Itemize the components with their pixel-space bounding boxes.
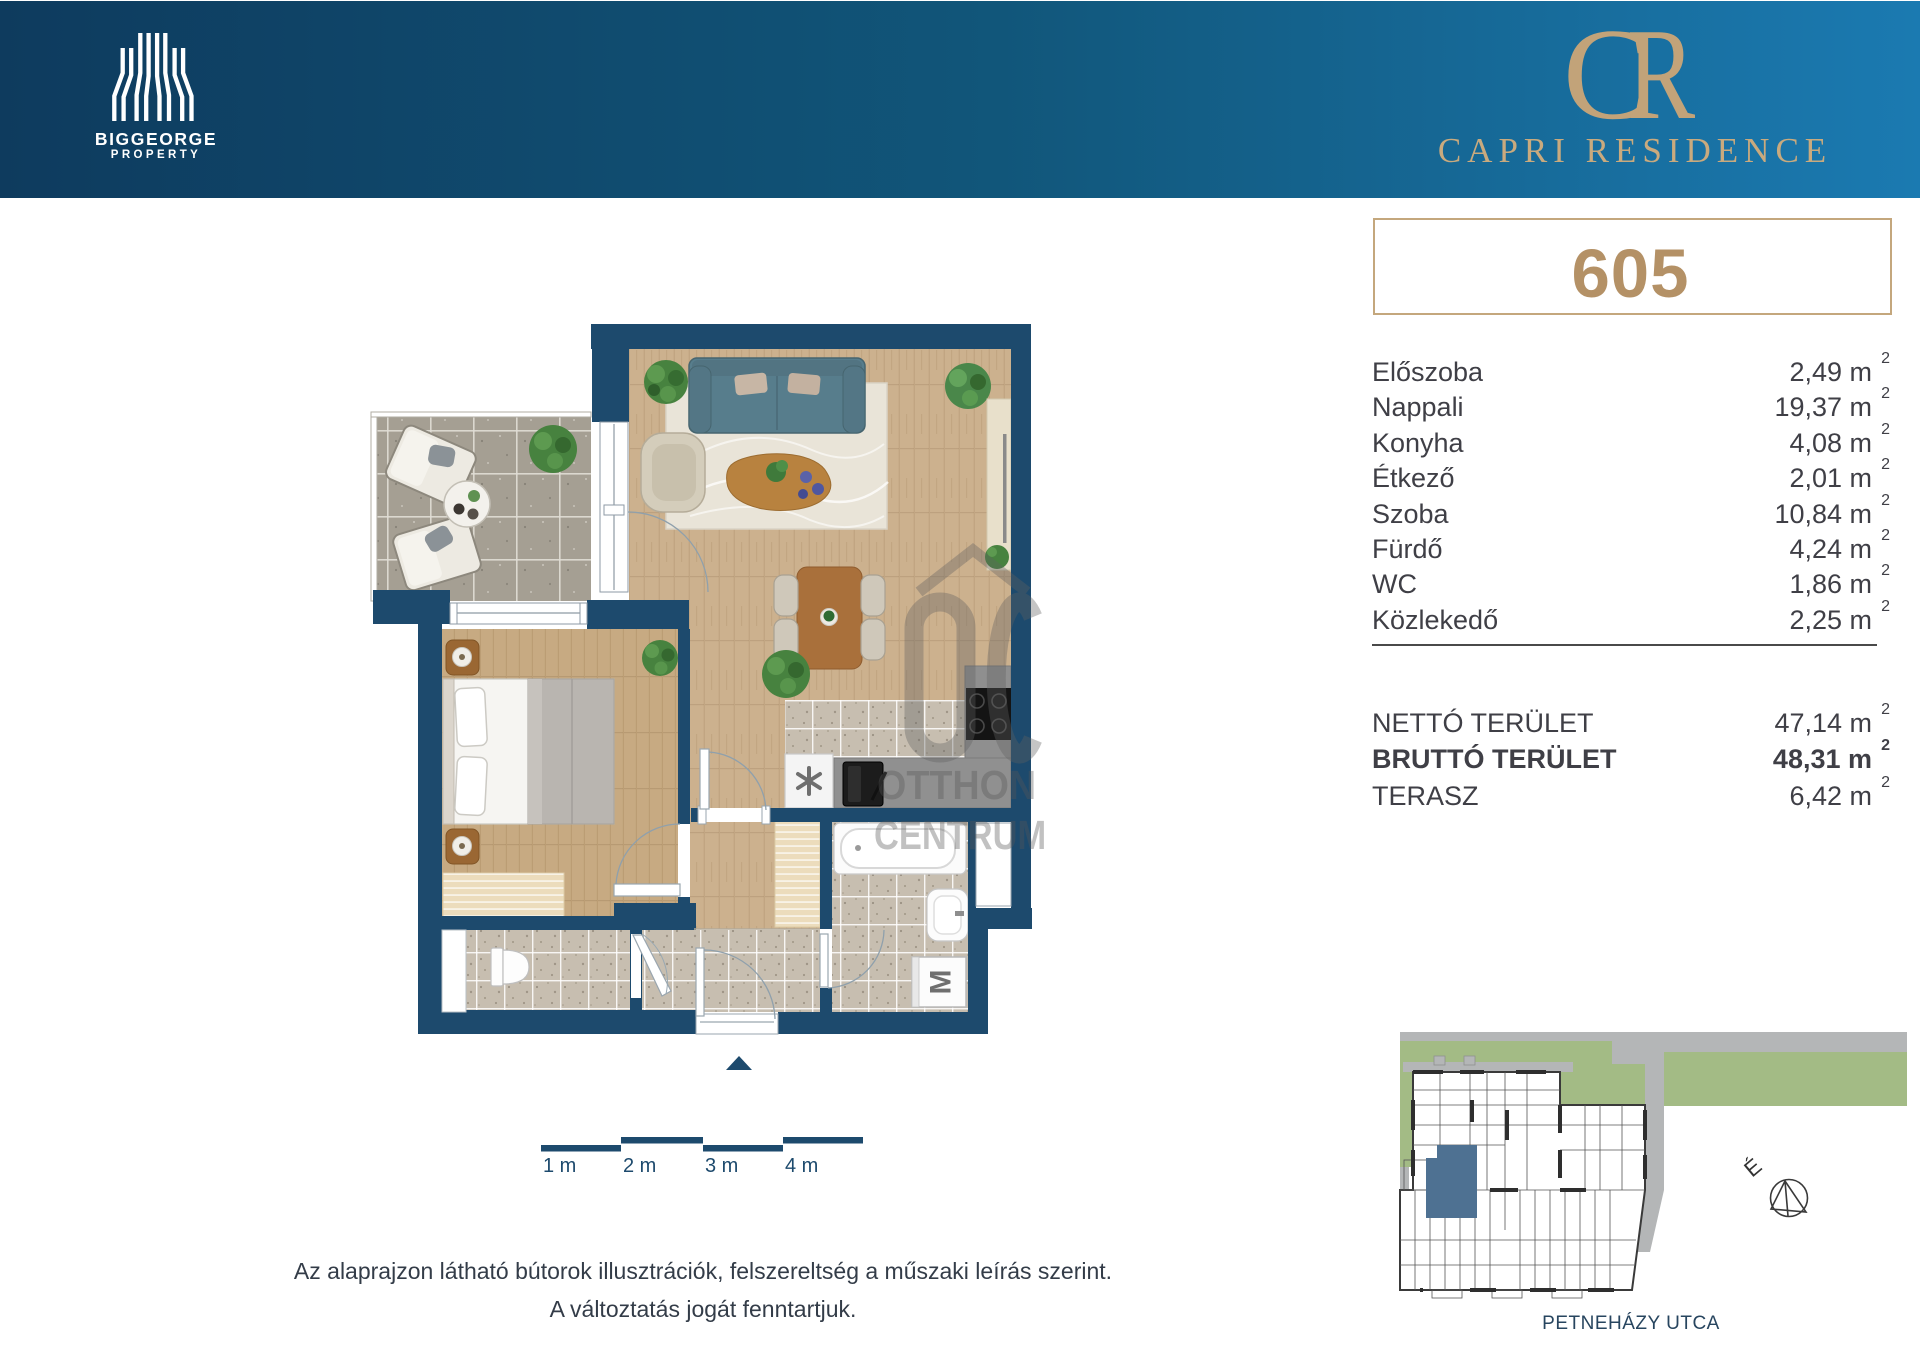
svg-text:OTTHON: OTTHON <box>877 763 1036 809</box>
svg-text:M: M <box>925 970 958 995</box>
svg-text:É: É <box>1739 1153 1766 1182</box>
svg-text:3 m: 3 m <box>705 1155 738 1177</box>
svg-text:4 m: 4 m <box>785 1155 818 1177</box>
svg-text:2 m: 2 m <box>623 1155 656 1177</box>
svg-text:1 m: 1 m <box>543 1155 576 1177</box>
svg-text:CENTRUM: CENTRUM <box>874 813 1046 858</box>
